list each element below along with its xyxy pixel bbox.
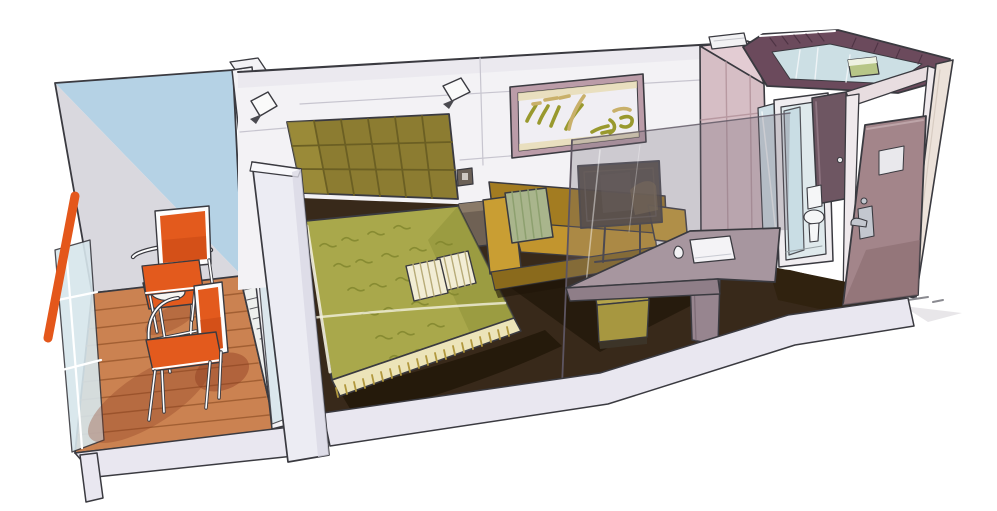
switch-button (462, 173, 468, 180)
door-window (879, 146, 904, 175)
bathroom-door-knob (837, 157, 842, 162)
telephone (674, 246, 683, 258)
cabin-cutaway-page (0, 0, 997, 511)
stool (597, 300, 649, 342)
notepad (690, 236, 735, 263)
cabin-cutaway-illustration (0, 0, 997, 511)
headboard (287, 114, 458, 199)
